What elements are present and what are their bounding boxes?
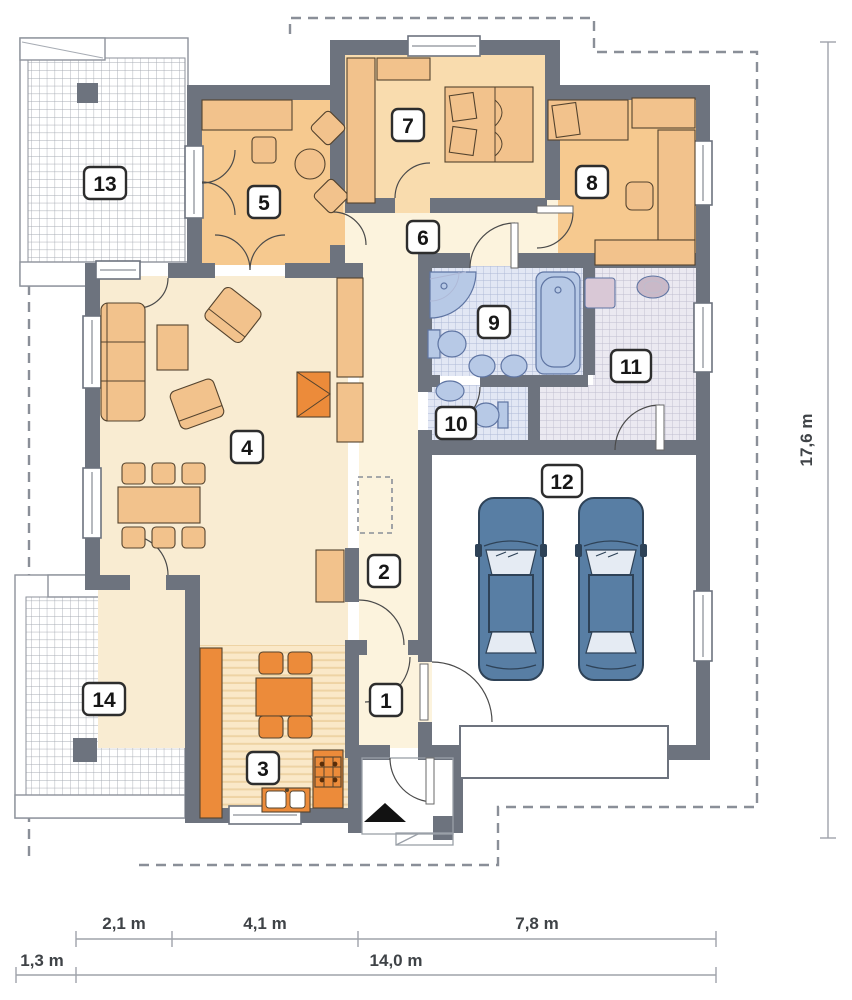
room-badge-6: 6 <box>407 221 439 253</box>
garage-floor <box>432 455 696 747</box>
svg-text:8: 8 <box>586 172 598 195</box>
chair <box>252 137 276 163</box>
desk-return <box>595 240 695 265</box>
svg-text:14: 14 <box>92 689 116 712</box>
terrace-pillar <box>77 83 98 103</box>
dining-chair <box>152 527 175 548</box>
dining-table <box>118 487 200 523</box>
room-badge-14: 14 <box>83 683 125 715</box>
stove <box>315 757 341 787</box>
dining-chair <box>182 463 205 484</box>
dim-label-total: 14,0 m <box>370 951 423 970</box>
svg-text:12: 12 <box>550 471 573 494</box>
dining-chair <box>122 527 145 548</box>
utility-sink <box>637 276 669 298</box>
pillow <box>449 92 476 121</box>
wardrobe <box>337 278 363 377</box>
wardrobe <box>337 383 363 442</box>
pillow <box>449 126 476 155</box>
room-badge-8: 8 <box>576 166 608 198</box>
svg-text:3: 3 <box>257 758 269 781</box>
kitchen-chair <box>259 652 283 674</box>
svg-text:2: 2 <box>378 561 390 584</box>
terrace-pillar <box>73 738 97 762</box>
coffee-table <box>157 325 188 370</box>
dim-label-offset: 1,3 m <box>20 951 63 970</box>
dimension-right: 17,6 m <box>797 42 836 838</box>
dim-label-height: 17,6 m <box>797 414 816 467</box>
svg-text:1: 1 <box>380 690 392 713</box>
pillow <box>552 102 580 137</box>
room-badge-11: 11 <box>611 350 651 382</box>
car-left <box>475 498 547 680</box>
floor-plan-drawing: 1 2 3 4 5 6 7 8 9 10 11 12 13 14 17,6 m … <box>0 0 852 1000</box>
sink-bowl <box>290 791 305 808</box>
room-badge-5: 5 <box>248 186 280 218</box>
svg-text:13: 13 <box>93 173 116 196</box>
svg-text:10: 10 <box>444 413 467 436</box>
kitchen-chair <box>259 716 283 738</box>
wardrobe <box>347 58 375 203</box>
kitchen-chair <box>288 652 312 674</box>
fireplace <box>297 372 330 417</box>
dimension-bottom: 2,1 m 4,1 m 7,8 m 1,3 m 14,0 m <box>16 914 716 983</box>
washing-machine <box>585 278 615 308</box>
room-badge-9: 9 <box>478 306 510 338</box>
svg-text:4: 4 <box>241 437 253 460</box>
kitchen-chair <box>288 716 312 738</box>
dining-chair <box>182 527 205 548</box>
floor-plan-page: 1 2 3 4 5 6 7 8 9 10 11 12 13 14 17,6 m … <box>0 0 852 1000</box>
terrace-13-decking <box>28 58 185 264</box>
svg-text:5: 5 <box>258 192 270 215</box>
svg-text:11: 11 <box>620 356 643 379</box>
desk <box>658 130 695 240</box>
desk-chair <box>626 182 653 210</box>
entrance-arrow <box>364 803 406 822</box>
washbasin <box>436 381 464 401</box>
kitchen-counter-left <box>200 648 222 818</box>
dim-label-seg2: 4,1 m <box>243 914 286 933</box>
dim-label-seg3: 7,8 m <box>515 914 558 933</box>
washbasin <box>501 355 527 377</box>
sink-bowl <box>266 791 286 808</box>
sofa <box>101 303 145 421</box>
room-badge-12: 12 <box>542 465 582 497</box>
svg-text:7: 7 <box>402 115 414 138</box>
room-badge-7: 7 <box>392 109 424 141</box>
washbasin <box>469 355 495 377</box>
toilet <box>438 331 466 357</box>
sideboard <box>202 100 292 130</box>
terrace-13 <box>20 38 188 286</box>
hall-closet <box>316 550 344 602</box>
dim-label-seg1: 2,1 m <box>102 914 145 933</box>
room-badge-2: 2 <box>368 555 400 587</box>
kitchen-table <box>256 678 312 716</box>
room-badge-1: 1 <box>370 684 402 716</box>
corridor-floor <box>359 265 418 555</box>
dresser <box>377 58 430 80</box>
dining-chair <box>152 463 175 484</box>
garage-door <box>460 726 668 778</box>
svg-text:6: 6 <box>417 227 429 250</box>
room-badge-13: 13 <box>84 167 126 199</box>
car-right <box>575 498 647 680</box>
svg-text:9: 9 <box>488 312 500 335</box>
room-badge-3: 3 <box>247 752 279 784</box>
shelf <box>632 98 695 128</box>
room-badge-4: 4 <box>231 431 263 463</box>
dining-chair <box>122 463 145 484</box>
room-badge-10: 10 <box>436 407 476 439</box>
round-table <box>295 149 325 179</box>
